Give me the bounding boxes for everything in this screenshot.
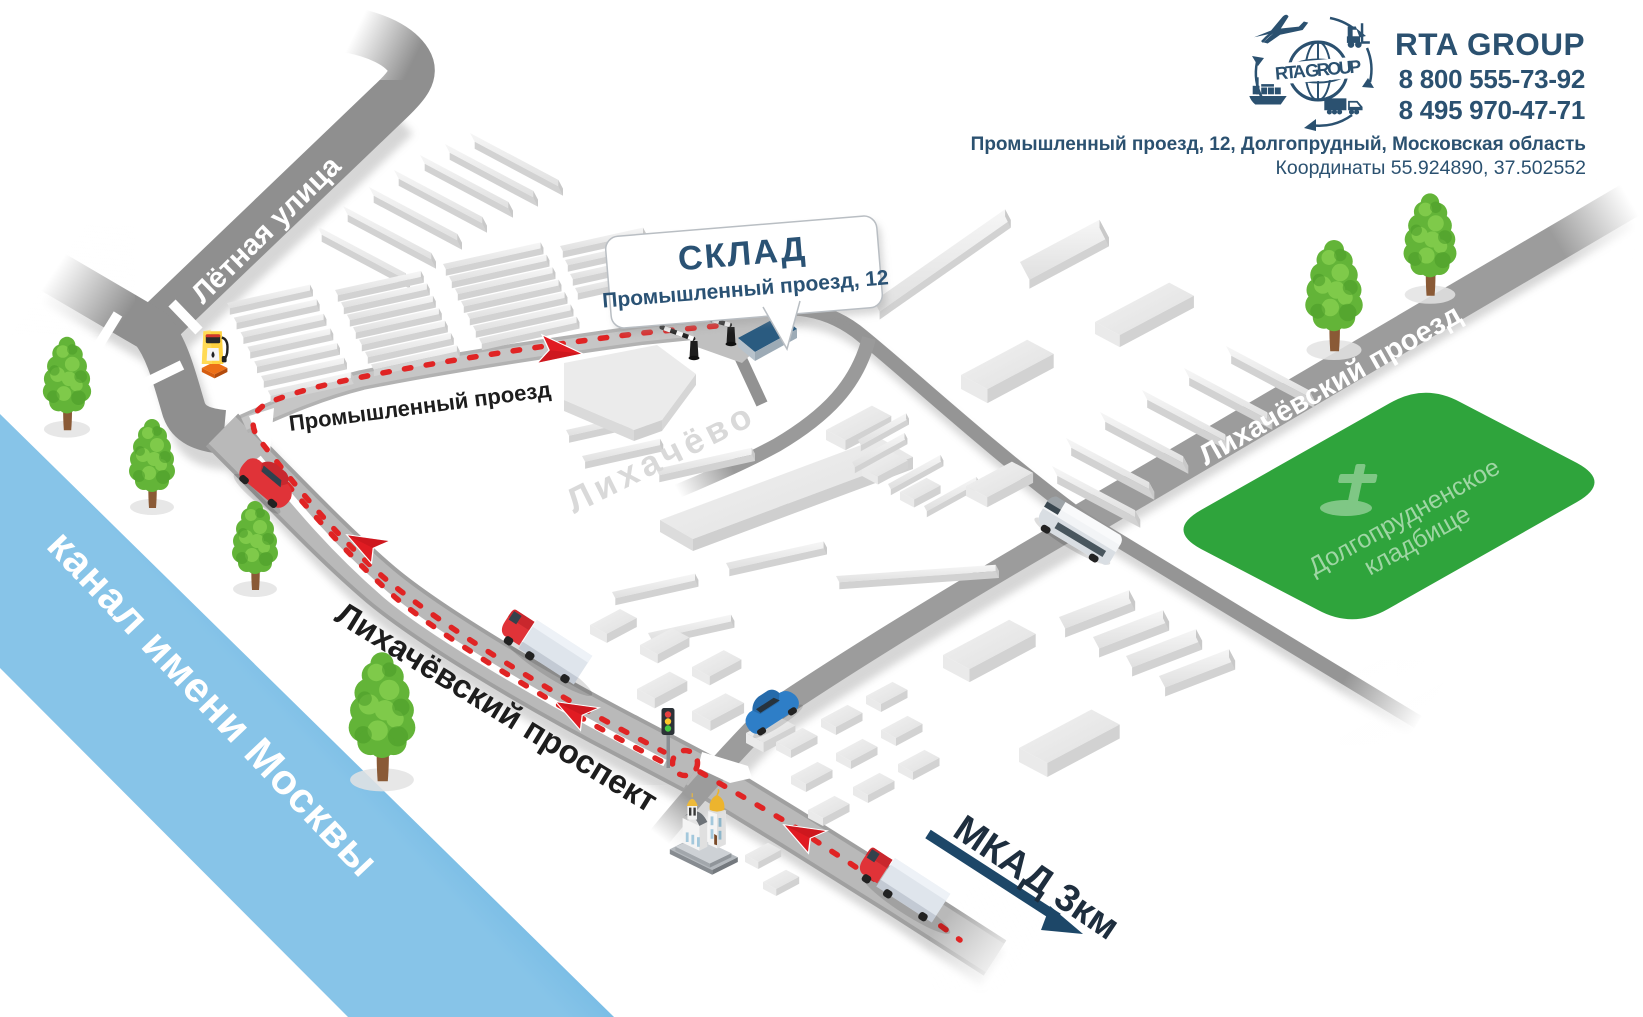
svg-text:8 495 970-47-71: 8 495 970-47-71 — [1399, 95, 1585, 125]
svg-text:8 800 555-73-92: 8 800 555-73-92 — [1399, 64, 1585, 94]
svg-text:Координаты 55.924890, 37.50255: Координаты 55.924890, 37.502552 — [1276, 157, 1586, 179]
svg-text:RTA GROUP: RTA GROUP — [1395, 26, 1585, 62]
svg-text:Промышленный проезд, 12, Долго: Промышленный проезд, 12, Долгопрудный, М… — [971, 134, 1586, 155]
